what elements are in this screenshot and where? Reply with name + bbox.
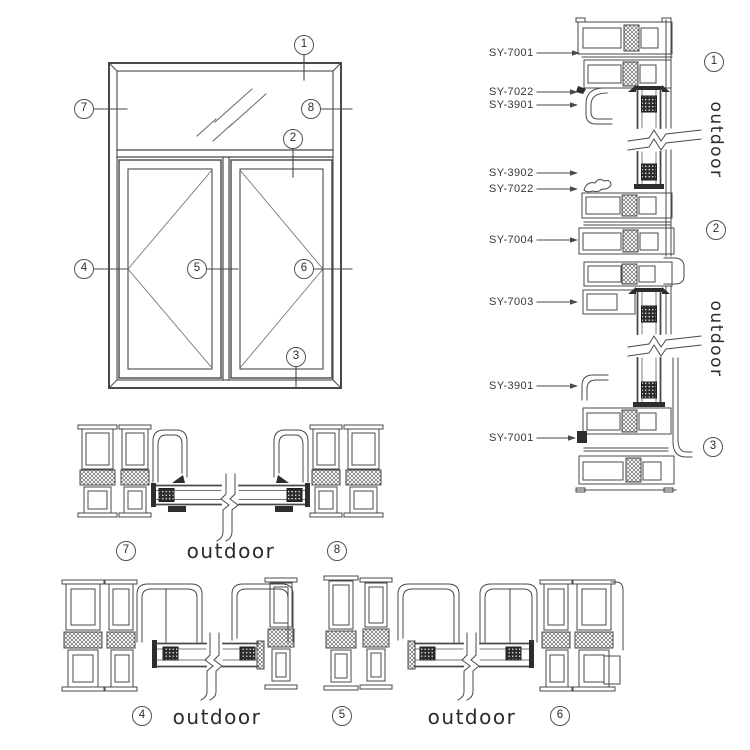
glass-symbol	[197, 89, 266, 141]
outdoor-label-middle: outdoor	[187, 539, 276, 563]
callout-3: 3	[286, 347, 306, 367]
callout-7: 7	[74, 99, 94, 119]
profile-label-sy7022-top: SY-7022	[489, 86, 534, 98]
callout-4: 4	[74, 259, 94, 279]
section-marker-7: 7	[116, 541, 136, 561]
horizontal-section-4-5-6	[62, 576, 623, 700]
detail-marker-3: 3	[703, 437, 723, 457]
profile-label-sy7022-mid: SY-7022	[489, 183, 534, 195]
profile-label-sy3901-bottom: SY-3901	[489, 380, 534, 392]
detail-marker-1: 1	[704, 52, 724, 72]
section-marker-4: 4	[132, 706, 152, 726]
profile-label-sy7001-bottom: SY-7001	[489, 432, 534, 444]
profile-label-sy3902: SY-3902	[489, 167, 534, 179]
detail-2-transom	[579, 150, 684, 334]
profile-label-sy7004: SY-7004	[489, 234, 534, 246]
drawing-canvas	[0, 0, 750, 750]
outdoor-label-bottom-left: outdoor	[173, 705, 262, 729]
callout-2: 2	[283, 129, 303, 149]
section-marker-6: 6	[550, 706, 570, 726]
outdoor-label-bottom-right: outdoor	[428, 705, 517, 729]
profile-label-sy7001-top: SY-7001	[489, 47, 534, 59]
section-marker-5: 5	[332, 706, 352, 726]
callout-8: 8	[301, 99, 321, 119]
callout-1: 1	[294, 35, 314, 55]
outdoor-label-right-top: outdoor	[706, 102, 726, 179]
window-section-diagram: 1 2 3 4 5 6 7 8 SY-7001 SY-7022 SY-3901 …	[0, 0, 750, 750]
label-leaders	[537, 50, 580, 440]
break-mark-1	[628, 130, 701, 150]
detail-3-sill	[576, 358, 692, 492]
section-marker-8: 8	[327, 541, 347, 561]
break-mark-2	[628, 336, 701, 356]
detail-1-head	[576, 18, 672, 128]
outdoor-label-right-bottom: outdoor	[706, 301, 726, 378]
profile-label-sy7003: SY-7003	[489, 296, 534, 308]
profile-label-sy3901-top: SY-3901	[489, 99, 534, 111]
callout-5: 5	[187, 259, 207, 279]
vertical-section-details	[537, 18, 701, 492]
horizontal-section-7-8	[78, 425, 383, 541]
detail-marker-2: 2	[706, 220, 726, 240]
callout-6: 6	[294, 259, 314, 279]
